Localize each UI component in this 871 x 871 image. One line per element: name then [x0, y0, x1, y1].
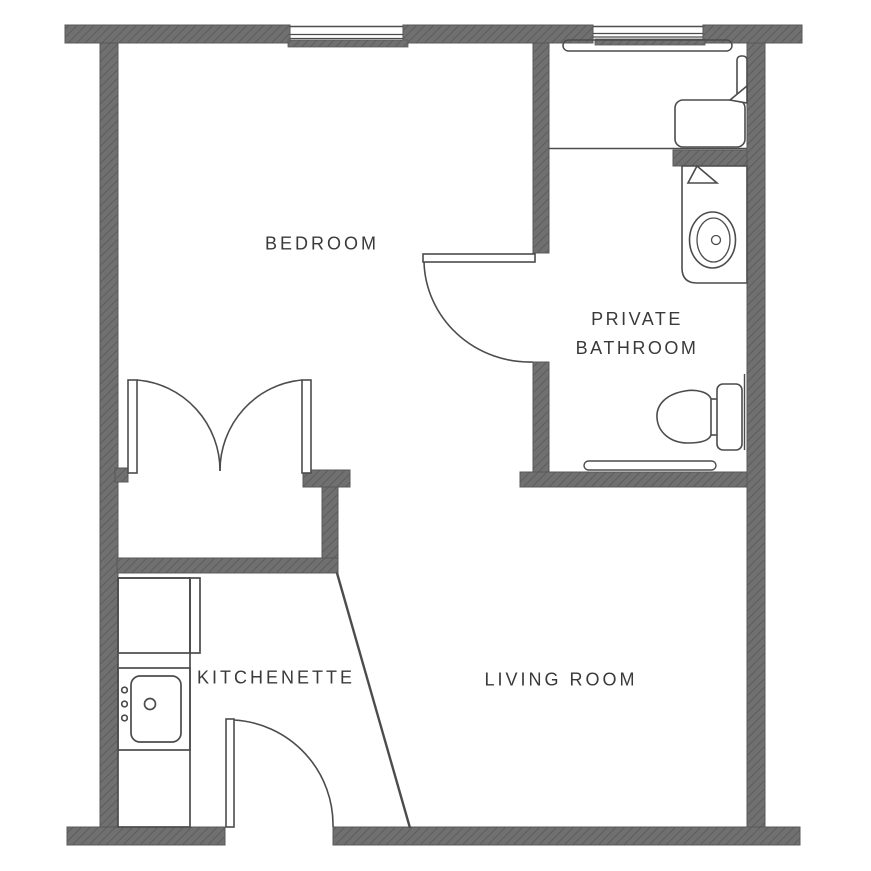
wall-grab-bar [584, 461, 716, 470]
kitchen-knob-1 [122, 687, 128, 693]
closet-door-swing-left [137, 380, 220, 471]
floor-plan: BEDROOM PRIVATE BATHROOM KITCHENETTE LIV… [0, 0, 871, 871]
shower-seat [675, 100, 745, 147]
bedroom-window-sill [288, 40, 408, 47]
kitchen-knob-2 [122, 701, 128, 707]
vanity-faucet [712, 236, 721, 245]
kitchen-fridge-cabinet [118, 578, 190, 653]
room-label-private-bathroom: PRIVATE BATHROOM [576, 305, 699, 363]
room-label-private-bathroom-line2: BATHROOM [576, 334, 699, 363]
wall-left [100, 43, 118, 827]
bedroom-window [288, 27, 408, 48]
kitchen-fridge-edge [190, 578, 200, 653]
wall-bathroom-bottom [520, 472, 747, 487]
wall-right [747, 43, 765, 827]
wall-divider-lower [533, 362, 549, 472]
room-label-kitchenette: KITCHENETTE [197, 668, 355, 689]
kitchen-knob-3 [122, 715, 128, 721]
bathroom-fixtures [549, 56, 747, 470]
floor-plan-drawing [0, 0, 871, 871]
closet-door-swing-right [220, 380, 302, 471]
wall-bottom-left [67, 827, 225, 845]
toilet-bowl [657, 390, 711, 443]
wall-top-middle [403, 25, 593, 43]
wall-divider-upper [533, 43, 549, 253]
toilet-tank [717, 384, 742, 450]
closet-door-leaf-left [128, 380, 137, 473]
room-label-living-room: LIVING ROOM [484, 670, 637, 691]
wall-top-left [65, 25, 290, 43]
bathroom-door-leaf [423, 254, 535, 262]
bathroom-door-swing [424, 262, 533, 362]
kitchen-counter [118, 578, 200, 827]
wall-closet-stub-left [115, 468, 128, 482]
room-label-bedroom: BEDROOM [265, 234, 379, 255]
entry-door-leaf [226, 719, 234, 827]
entry-door [226, 719, 333, 827]
closet-double-doors [128, 380, 311, 473]
kitchen-sink-drain [145, 699, 156, 710]
kitchen-sink-basin [131, 676, 181, 742]
wall-kitchen-top [117, 558, 338, 573]
kitchen-counter-outline [118, 578, 190, 827]
bathroom-door [423, 254, 535, 362]
room-label-private-bathroom-line1: PRIVATE [576, 305, 699, 334]
wall-shower-stub [673, 150, 747, 166]
wall-bottom-right [333, 827, 800, 845]
diagonal-partition [337, 573, 410, 828]
entry-door-swing [234, 720, 333, 827]
closet-door-leaf-right [302, 380, 311, 473]
